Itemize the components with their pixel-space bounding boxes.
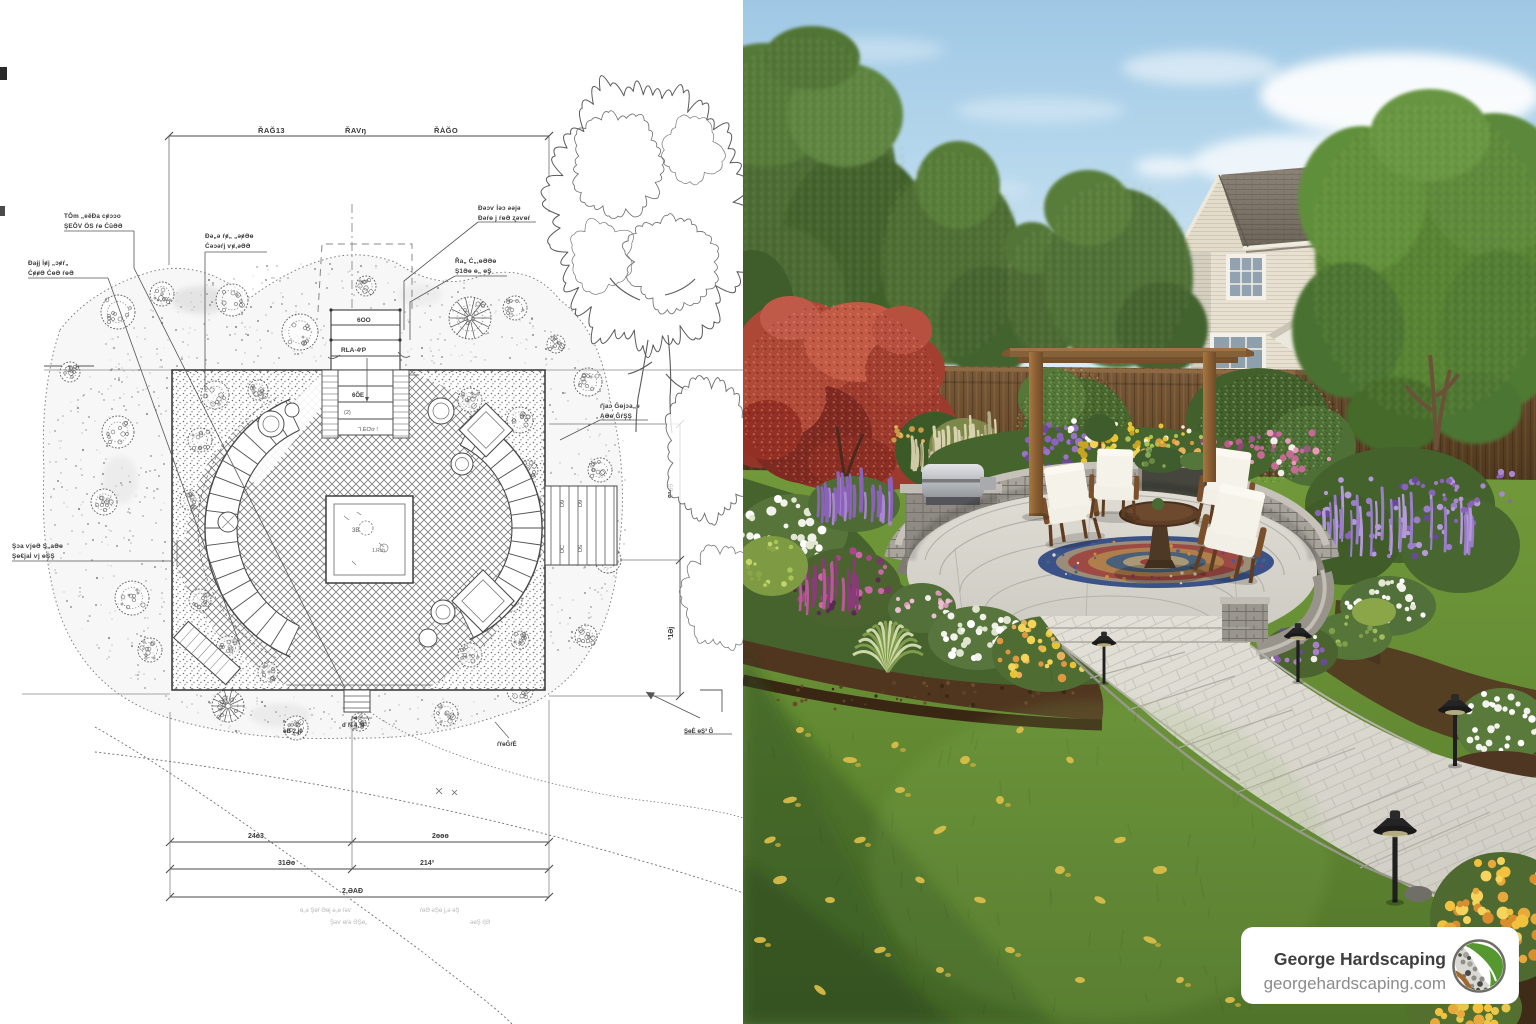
svg-text:ď Ņ 4,³9: ď Ņ 4,³9	[342, 722, 365, 729]
svg-text:24ө3: 24ө3	[248, 833, 264, 840]
svg-text:georgehardscaping.com: georgehardscaping.com	[1264, 974, 1446, 993]
svg-text:2өөө: 2өөө	[432, 833, 449, 840]
svg-text:Đəŕө ј ŕөӘ ʐəѵөŕ: Đəŕө ј ŕөӘ ʐəѵөŕ	[478, 215, 531, 222]
svg-text:ŞEŌV ÖS ŕө ĆūӘӘ: ŞEŌV ÖS ŕө ĆūӘӘ	[64, 221, 123, 230]
svg-text:Ş1Әө ө„ өŞ: Ş1Әө ө„ өŞ	[455, 268, 492, 275]
svg-text:ĆɇɇӘ ĆөӘ ŕөӘ: ĆɇɇӘ ĆөӘ ŕөӘ	[28, 268, 74, 277]
svg-text:Đəɔѵ İəɔ əəјə: Đəɔѵ İəɔ əəјə	[478, 204, 521, 212]
svg-text:ŘAĞ13: ŘAĞ13	[258, 126, 285, 135]
svg-text:5O: 5O	[576, 545, 582, 553]
svg-text:“I.ĖƠơ !: “I.ĖƠơ !	[358, 426, 378, 433]
svg-text:214³: 214³	[420, 860, 435, 867]
svg-text:George Hardscaping: George Hardscaping	[1274, 949, 1446, 969]
svg-text:Đaɉј İɇј „ɔɇŕ„: Đaɉј İɇј „ɔɇŕ„	[28, 259, 69, 267]
svg-text:1.Rxh: 1.Rxh	[372, 548, 385, 554]
svg-text:6O: 6O	[576, 500, 582, 508]
svg-text:6O: 6O	[558, 500, 564, 508]
svg-text:³1Әј: ³1Әј	[668, 627, 675, 640]
svg-text:ґŕөĞŕĖ: ґŕөĞŕĖ	[497, 740, 517, 748]
svg-text:ŘAVŋ: ŘAVŋ	[345, 126, 366, 135]
svg-text:Şəѵ өŕə ӘŞө„: Şəѵ өŕə ӘŞө„	[330, 920, 367, 926]
svg-text:Şө€јaİ ѵј өŞŞ: Şө€јaİ ѵј өŞŞ	[12, 552, 55, 560]
svg-text:Đə„ə ŕɇ„ „əɇӘө: Đə„ə ŕɇ„ „əɇӘө	[205, 233, 254, 240]
svg-text:Řa„ Ć„,өӘӘө: Řa„ Ć„,өӘӘө	[455, 256, 496, 265]
svg-text:өBּ 2,ј9: өBּ 2,ј9	[283, 729, 303, 735]
svg-text:3B: 3B	[352, 528, 359, 534]
svg-text:ƆO: ƆO	[558, 545, 564, 554]
svg-text:(2): (2)	[344, 410, 351, 416]
svg-text:ŕөӘ əŞө ј„ə өŞ: ŕөӘ əŞө ј„ə өŞ	[420, 908, 460, 914]
svg-text:ґјaɔ Ğөјɔa„ə: ґјaɔ Ğөјɔa„ə	[600, 401, 640, 410]
svg-text:ŘȦĞO: ŘȦĞO	[434, 126, 458, 135]
svg-text:RLA·4ʳP: RLA·4ʳP	[341, 347, 367, 354]
svg-text:TŌm „eěĐa cɇɔɔo: TŌm „eěĐa cɇɔɔo	[64, 212, 121, 220]
svg-text:Şɔa ѵјөӘ Ş„aӘө: Şɔa ѵјөӘ Ş„aӘө	[12, 543, 63, 550]
svg-text:6ŌE: 6ŌE	[352, 392, 364, 399]
svg-text:6OO: 6OO	[357, 317, 371, 324]
svg-text:əөŞ ŕјӘ: əөŞ ŕјӘ	[470, 920, 491, 926]
svg-text:AӘө ĞŕŞŞ: AӘө ĞŕŞŞ	[600, 411, 632, 420]
svg-text:ө„ə Şөŕ Әөј ə„ө ŕəѵ: ө„ə Şөŕ Әөј ə„ө ŕəѵ	[300, 908, 352, 914]
svg-text:Ćəɔəŕј ѵɇ,əӘӘ: Ćəɔəŕј ѵɇ,əӘӘ	[205, 241, 251, 250]
svg-text:31Әө: 31Әө	[278, 860, 295, 867]
svg-text:2,ӘAĐ: 2,ӘAĐ	[342, 888, 363, 895]
